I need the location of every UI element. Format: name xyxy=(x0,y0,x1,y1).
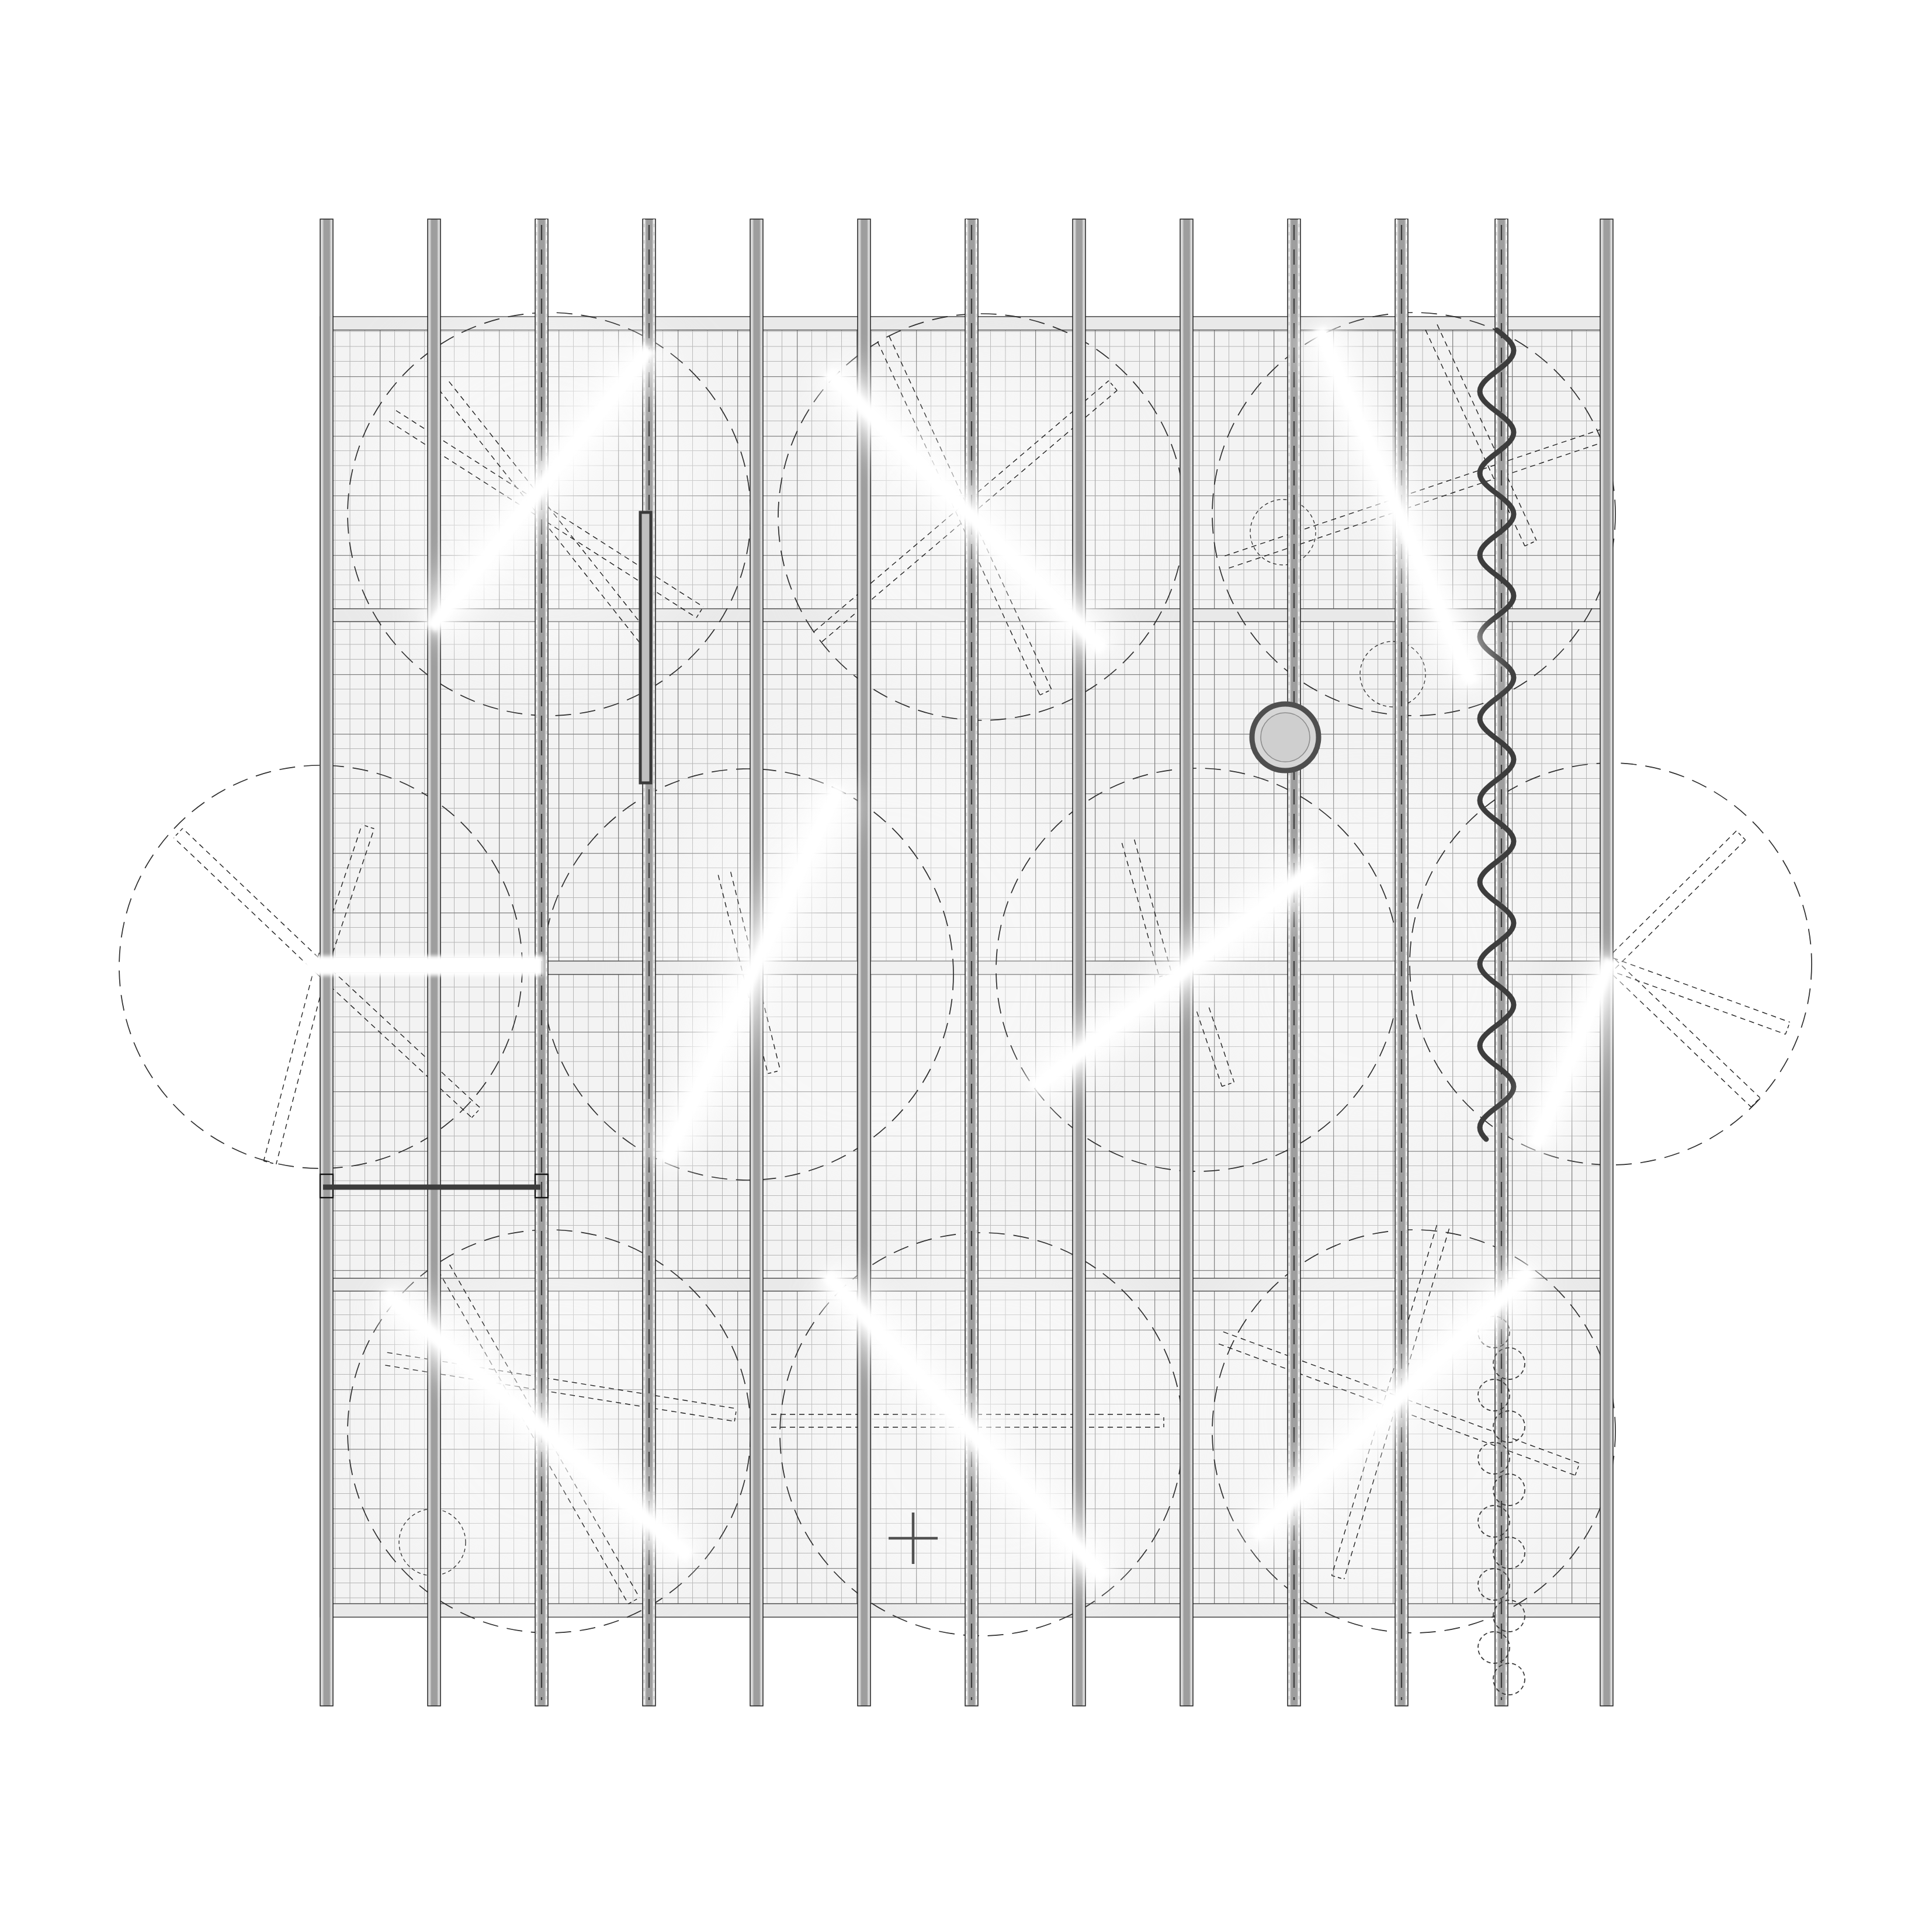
bar-body xyxy=(1073,219,1085,1706)
louver-blade-7 xyxy=(174,828,325,973)
dark-track-element xyxy=(640,512,651,783)
mullion-bar-8 xyxy=(1073,219,1085,1706)
blade-edge-b xyxy=(1613,958,1790,1022)
mullion-bar-7 xyxy=(965,219,978,1706)
blade-tip xyxy=(1751,1098,1760,1107)
blade-edge-a xyxy=(263,967,314,1161)
blade-edge-b xyxy=(1606,831,1736,959)
dark-tie-bar xyxy=(323,1185,540,1190)
louver-blade-16 xyxy=(1606,831,1745,969)
plan-drawing-svg xyxy=(0,0,1932,1932)
architectural-plan-canvas xyxy=(0,0,1932,1932)
louver-blade-8 xyxy=(263,967,327,1164)
blade-tip xyxy=(1736,831,1745,840)
blade-edge-a xyxy=(183,828,325,964)
blade-edge-a xyxy=(1606,969,1751,1107)
blade-edge-b xyxy=(174,838,316,973)
white-gap-joint xyxy=(304,956,543,976)
blade-tip xyxy=(174,828,182,838)
blade-edge-a xyxy=(1615,840,1746,969)
louver-blade-14 xyxy=(1606,959,1760,1107)
blade-tip xyxy=(1785,1022,1790,1035)
column-disc-inner xyxy=(1261,713,1310,762)
louver-blade-15 xyxy=(1608,958,1790,1035)
blade-tip xyxy=(263,1161,276,1164)
blade-edge-a xyxy=(1608,970,1785,1034)
blade-edge-b xyxy=(276,970,327,1164)
